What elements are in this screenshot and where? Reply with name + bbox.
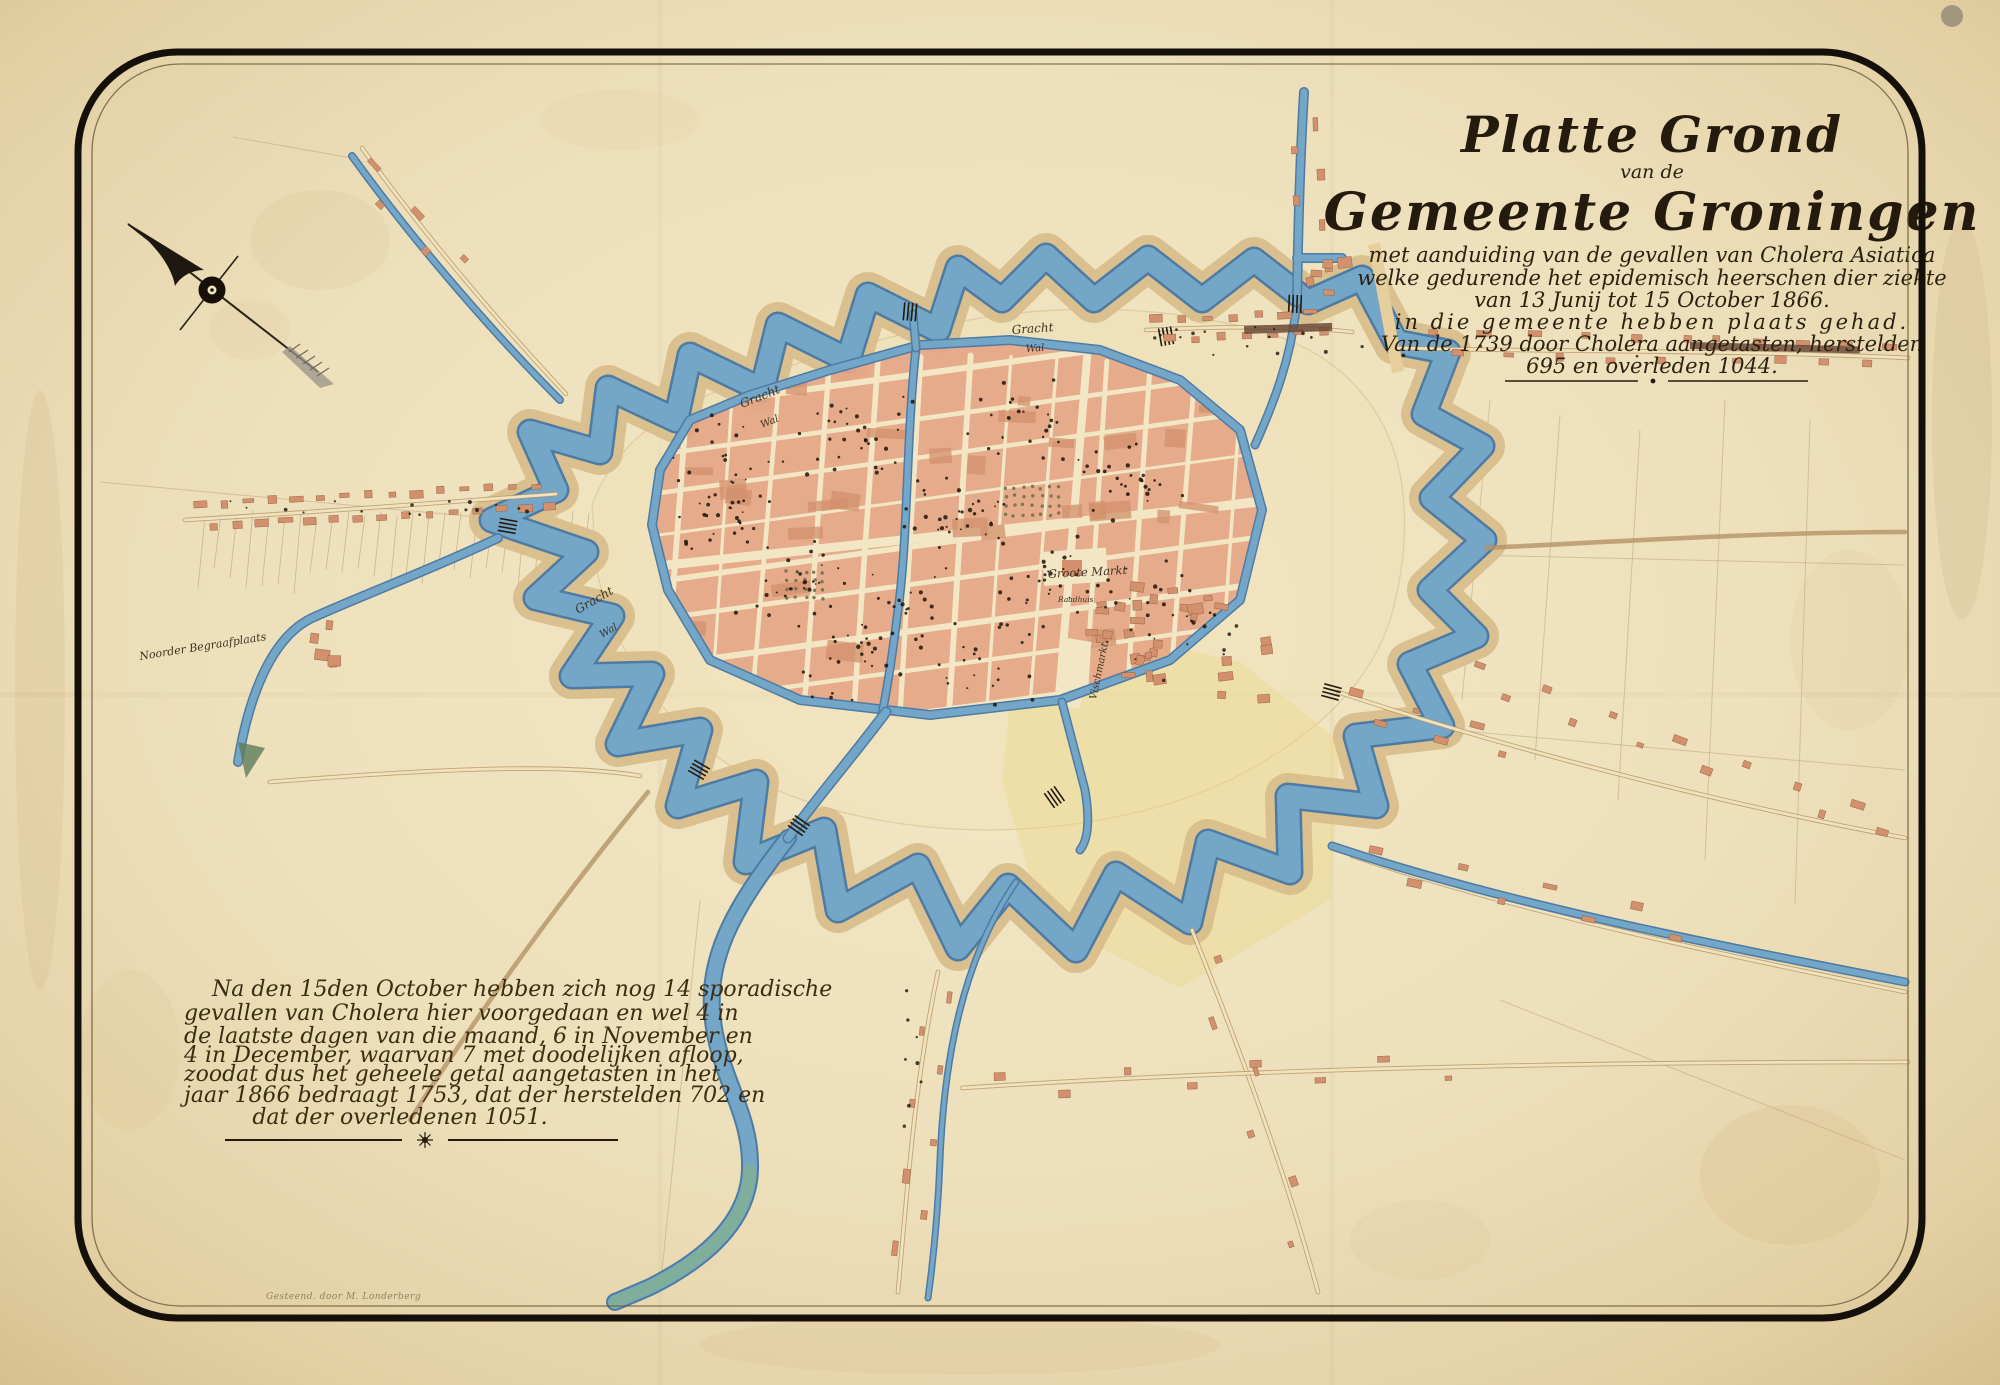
note-line-2: gevallen van Cholera hier voorgedaan en …: [184, 1001, 739, 1026]
label-gracht-north: Gracht: [1011, 320, 1054, 337]
title-sub-6: 695 en overleden 1044.: [1526, 354, 1778, 378]
title-line-3: Gemeente Groningen: [1324, 182, 1981, 243]
map-canvas: Gracht Wal Gracht Wal Gracht Wal Groote …: [0, 0, 2000, 1385]
label-wal-north: Wal: [1025, 343, 1044, 355]
title-underline-ornament: [1651, 379, 1656, 384]
note-line-1: Na den 15den October hebben zich nog 14 …: [211, 977, 832, 1002]
label-raadhuis: Raadhuis: [1057, 595, 1094, 604]
title-sub-1: met aanduiding van de gevallen van Chole…: [1369, 243, 1936, 267]
title-sub-4: in die gemeente hebben plaats gehad.: [1395, 310, 1909, 334]
title-sub-3: van 13 Junij tot 15 October 1866.: [1474, 288, 1830, 312]
corner-stain: [1941, 5, 1963, 27]
title-line-2: van de: [1620, 161, 1684, 183]
note-line-7: dat der overledenen 1051.: [252, 1105, 547, 1130]
map-sheet: Gracht Wal Gracht Wal Gracht Wal Groote …: [0, 0, 2000, 1385]
title-sub-5: Van de 1739 door Cholera aangetasten, he…: [1381, 332, 1923, 356]
title-line-1: Platte Grond: [1459, 105, 1843, 164]
title-sub-2: welke gedurende het epidemisch heerschen…: [1357, 266, 1946, 290]
printer-credit: Gesteend. door M. Londerberg: [266, 1292, 421, 1302]
north-arrow-hub-pin: [210, 288, 214, 292]
